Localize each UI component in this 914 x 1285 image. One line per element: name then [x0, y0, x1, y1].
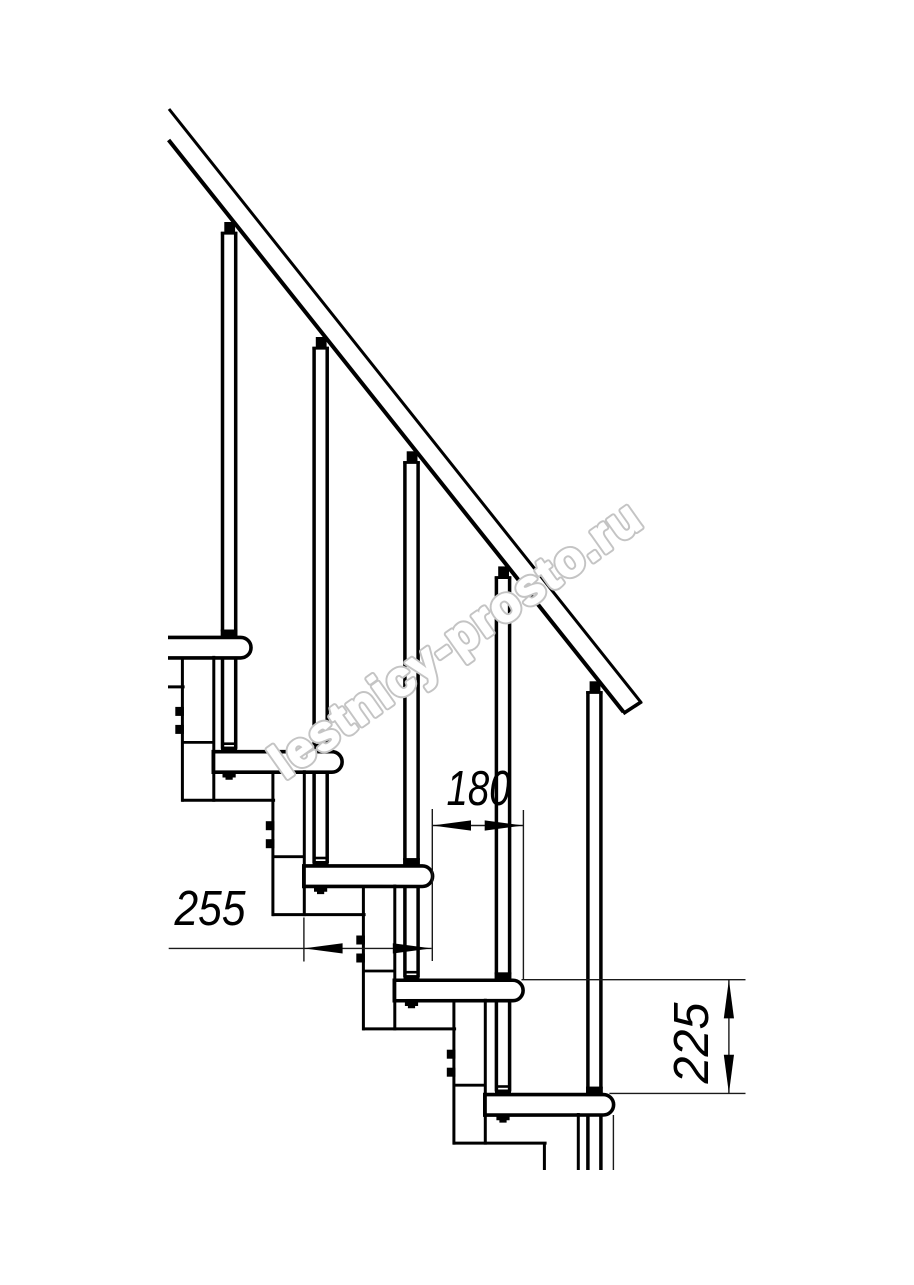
svg-text:255: 255 [174, 882, 247, 936]
svg-text:225: 225 [665, 1002, 719, 1085]
svg-text:180: 180 [447, 762, 511, 816]
